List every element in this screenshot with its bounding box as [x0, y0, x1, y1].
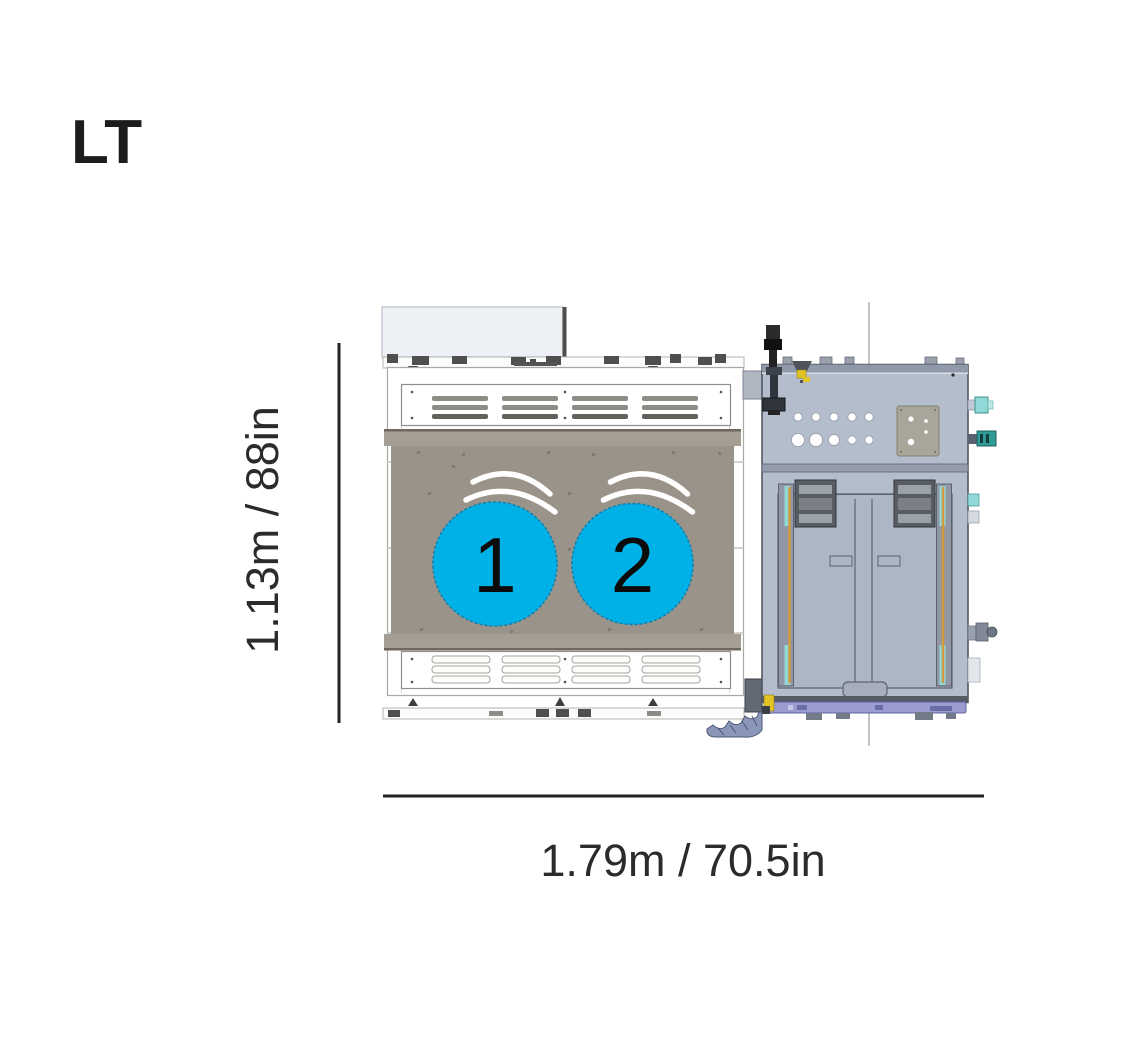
height-dimension-line [338, 343, 341, 723]
machine-dimension-drawing: 1 2 [0, 0, 1140, 1049]
mounting-plate [897, 406, 939, 456]
side-connectors [968, 397, 997, 682]
bracket-right [894, 480, 935, 527]
connector-round [968, 623, 997, 641]
fan-1: 1 [433, 502, 557, 626]
rail-right [937, 484, 952, 686]
top-vent-panel [402, 385, 731, 426]
connector-air [968, 397, 993, 413]
bottom-mounting-strip [383, 697, 744, 719]
handle-recess [843, 682, 887, 697]
sensor-rod [763, 325, 785, 415]
width-dimension-line [383, 795, 984, 798]
link-block-top [743, 371, 763, 399]
left-module: 1 2 [382, 307, 744, 719]
fan-2: 2 [572, 504, 693, 625]
right-module [707, 302, 997, 746]
connector-tab [968, 658, 980, 682]
bottom-vent-panel [402, 652, 731, 689]
connector-power [968, 431, 996, 446]
kick-strip [762, 695, 968, 720]
fan-2-label: 2 [611, 521, 654, 609]
section-divider [762, 464, 968, 472]
fan-1-label: 1 [473, 521, 516, 609]
rail-left [779, 484, 794, 686]
connector-small-pair [968, 494, 979, 523]
link-block-bottom [745, 679, 762, 712]
bracket-left [795, 480, 836, 527]
diagram-page: LT 1.13m / 88in 1.79m / 70.5in [0, 0, 1140, 1049]
